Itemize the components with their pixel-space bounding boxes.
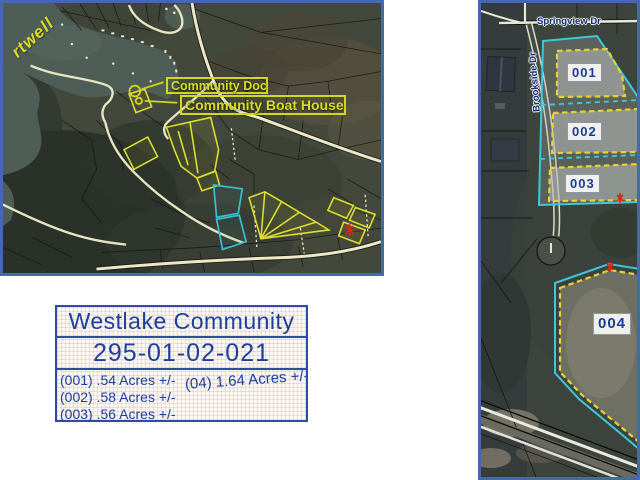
acreage-list: (001) .54 Acres +/- (002) .58 Acres +/- …: [57, 370, 306, 424]
street-label-springview: Springview Dr: [537, 16, 601, 27]
right-map-graphic: [481, 3, 637, 477]
acreage-line-003: (003) .56 Acres +/-: [60, 406, 306, 423]
parcel-tag-001: 001: [567, 63, 602, 82]
parcel-info-box: Westlake Community 295-01-02-021 (001) .…: [55, 305, 308, 422]
right-aerial-map: Springview Dr Brookside Dr 001 002 003 0…: [478, 0, 640, 480]
parcel-id: 295-01-02-021: [57, 338, 306, 370]
listing-map-sheet: rtwell Community Doc Community Boat Hous…: [0, 0, 640, 480]
parcel-tag-004: 004: [593, 313, 631, 335]
community-title: Westlake Community: [57, 307, 306, 338]
parcel-tag-002: 002: [567, 122, 602, 141]
left-map-graphic: [3, 3, 381, 273]
acreage-line-002: (002) .58 Acres +/-: [60, 389, 306, 406]
left-aerial-map: rtwell Community Doc Community Boat Hous…: [0, 0, 384, 276]
parcel-tag-003: 003: [565, 174, 600, 193]
